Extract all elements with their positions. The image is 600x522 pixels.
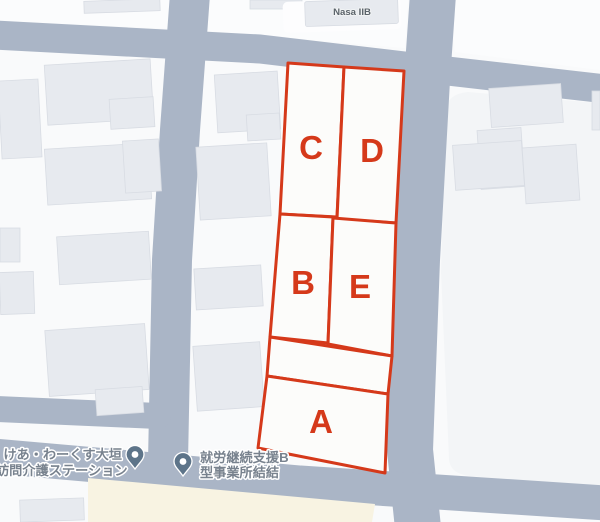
parcel-label-c: C <box>299 129 323 166</box>
care-station-label-line1: けあ・わーくす大垣 <box>3 446 122 462</box>
care-station-label-line2: 訪問介護ステーション <box>0 462 128 478</box>
employment-label-line2: 型事業所結結 <box>200 464 279 480</box>
parcel-label-d: D <box>360 132 384 169</box>
map-canvas[interactable]: C D B E A Nasa IIB けあ・わーくす大垣 訪問介護ステーション … <box>0 0 600 522</box>
employment-label-line1: 就労継続支援B <box>200 449 289 465</box>
parcel-label-a: A <box>309 403 333 440</box>
parcel-label-b: B <box>291 264 315 301</box>
map-viewport[interactable]: C D B E A Nasa IIB けあ・わーくす大垣 訪問介護ステーション … <box>0 0 600 522</box>
road-left-vertical <box>168 0 190 462</box>
road-right-vertical <box>410 0 433 522</box>
nasa-label: Nasa IIB <box>333 7 371 18</box>
parcel-label-e: E <box>349 268 371 305</box>
